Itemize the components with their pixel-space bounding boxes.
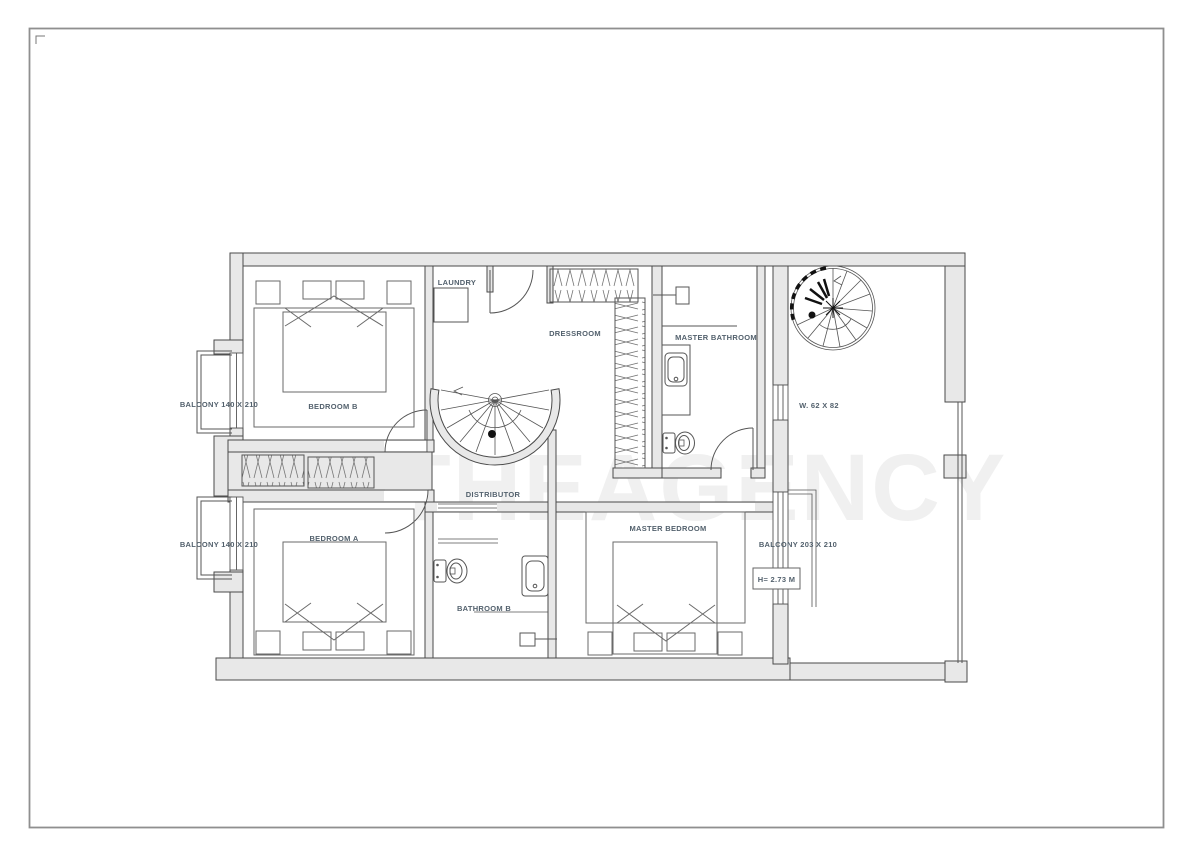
- label-window-size: W. 62 X 82: [799, 401, 839, 410]
- sink-master-bathroom: [662, 345, 690, 415]
- dressroom-closet-side: [615, 298, 645, 468]
- height-note: H= 2.73 M: [753, 568, 800, 589]
- floor-plan-page: THEAGENCY: [0, 0, 1191, 842]
- label-balcony-right: BALCONY 203 X 210: [759, 540, 837, 549]
- label-bathroom-b: BATHROOM B: [457, 604, 511, 613]
- window-balcony-top-left: [230, 353, 243, 428]
- label-balcony-bottom-left: BALCONY 140 X 210: [180, 540, 258, 549]
- window-62x82: [773, 385, 788, 420]
- label-dressroom: DRESSROOM: [549, 329, 601, 338]
- dressroom-closet-top: [550, 269, 638, 302]
- toilet-master-bathroom: [663, 432, 695, 454]
- label-balcony-top-left: BALCONY 140 X 210: [180, 400, 258, 409]
- railing-balcony-bottom-left: [197, 497, 232, 579]
- window-balcony-bottom-left: [230, 497, 243, 570]
- height-note-text: H= 2.73 M: [758, 575, 796, 584]
- page-border: [30, 29, 1164, 828]
- sink-bathroom-b: [522, 556, 548, 596]
- label-master-bathroom: MASTER BATHROOM: [675, 333, 757, 342]
- door-dressroom: [490, 270, 533, 313]
- toilet-bathroom-b: [434, 559, 467, 583]
- washing-machine: [434, 288, 468, 322]
- spiral-staircase-terrace: [791, 266, 875, 350]
- stair-dot: [809, 312, 816, 319]
- label-distributor: DISTRIBUTOR: [466, 490, 521, 499]
- label-laundry: LAUNDRY: [438, 278, 477, 287]
- label-bedroom-a: BEDROOM A: [309, 534, 358, 543]
- label-master-bedroom: MASTER BEDROOM: [629, 524, 706, 533]
- wardrobe-2: [308, 457, 374, 488]
- stair-dot: [488, 430, 496, 438]
- floor-plan-svg: THEAGENCY: [0, 0, 1191, 842]
- wardrobe-1: [242, 455, 304, 486]
- label-bedroom-b: BEDROOM B: [308, 402, 358, 411]
- bed-bedroom-a: [254, 509, 414, 655]
- railing-balcony-top-left: [197, 351, 232, 433]
